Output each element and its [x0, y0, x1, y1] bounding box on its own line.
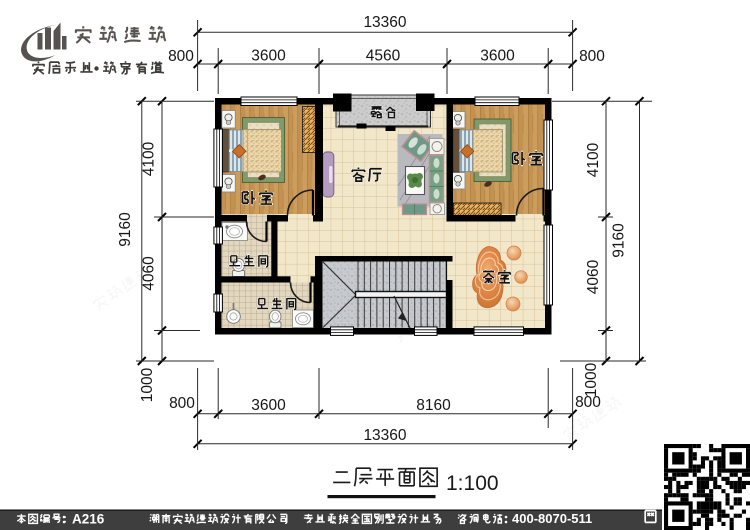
svg-text:1000: 1000 [139, 367, 156, 402]
svg-text:A216: A216 [72, 512, 105, 527]
svg-text:1:100: 1:100 [446, 472, 499, 495]
svg-text:1000: 1000 [583, 362, 600, 397]
svg-text:4100: 4100 [141, 141, 158, 176]
svg-text:800: 800 [169, 395, 195, 412]
svg-text:3600: 3600 [251, 397, 286, 414]
svg-text:3600: 3600 [480, 48, 515, 65]
svg-text:4560: 4560 [366, 48, 401, 65]
svg-text:9160: 9160 [117, 212, 134, 247]
svg-text:800: 800 [579, 48, 605, 65]
svg-text:800: 800 [168, 48, 194, 65]
svg-text:4100: 4100 [585, 142, 602, 177]
svg-text:13360: 13360 [363, 14, 406, 31]
svg-text:13360: 13360 [363, 427, 406, 444]
svg-text:400-8070-511: 400-8070-511 [512, 511, 592, 526]
svg-text:3600: 3600 [251, 48, 286, 65]
svg-text:9160: 9160 [611, 223, 628, 258]
svg-text:800: 800 [575, 394, 601, 411]
svg-text::: : [63, 512, 67, 526]
svg-text:4060: 4060 [141, 256, 158, 291]
svg-text:8160: 8160 [416, 397, 451, 414]
svg-text:4060: 4060 [585, 259, 602, 294]
